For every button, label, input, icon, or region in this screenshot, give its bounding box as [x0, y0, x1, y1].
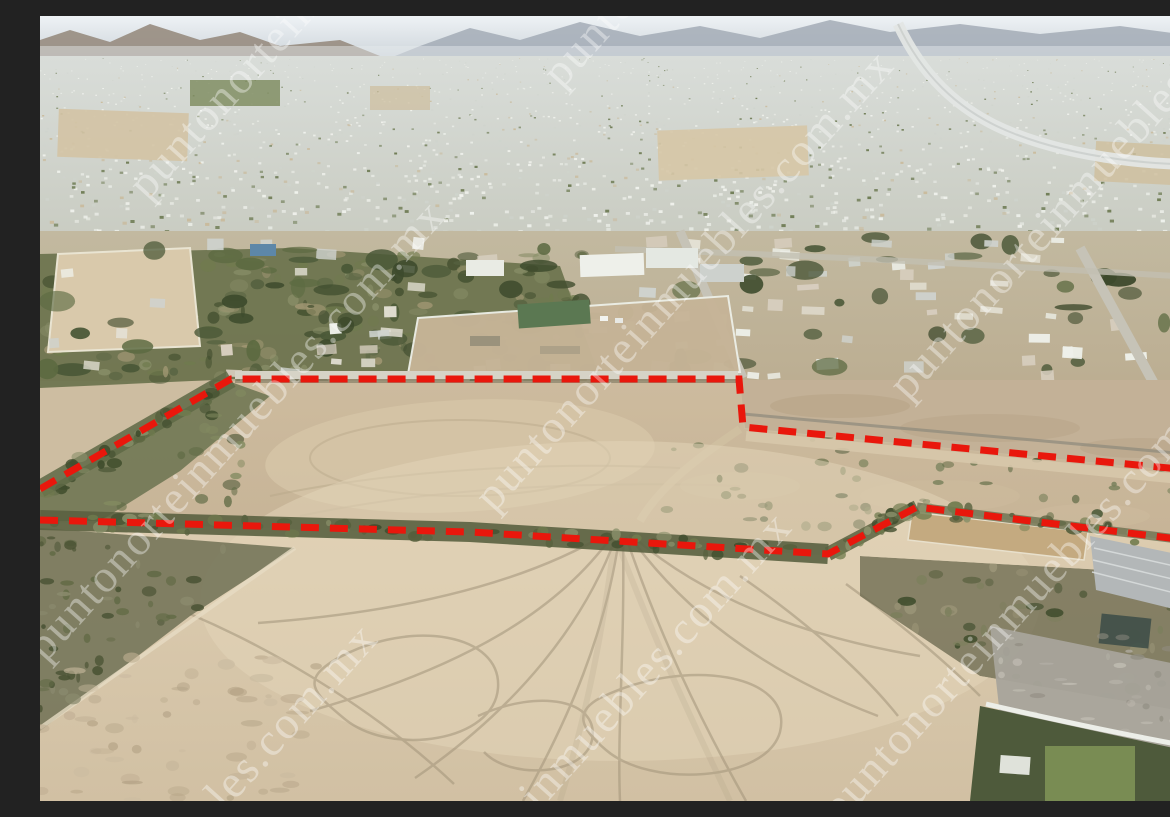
- dirt-patch: [770, 394, 910, 418]
- aerial-scene: [40, 16, 1170, 801]
- park-strip: [190, 80, 280, 106]
- white-building: [466, 260, 504, 276]
- yard-clutter: [470, 336, 500, 346]
- yard-clutter: [540, 346, 580, 354]
- green-roof-building: [517, 300, 590, 329]
- dirt-patch: [900, 414, 1080, 442]
- parked-car: [615, 318, 623, 323]
- aerial-photo: puntonorteinmuebles.com.mxpuntonorteinmu…: [40, 16, 1170, 801]
- dark-structure: [1099, 613, 1152, 648]
- dirt-sports-field-far: [657, 125, 809, 180]
- white-building: [646, 248, 698, 268]
- white-building: [580, 253, 645, 277]
- green-yard: [1045, 746, 1135, 801]
- dirt-lot: [370, 86, 430, 110]
- parked-car: [600, 316, 608, 321]
- gray-building: [700, 264, 744, 282]
- blue-roof-building: [250, 244, 276, 256]
- small-roof: [999, 755, 1030, 775]
- dirt-lot: [57, 109, 189, 162]
